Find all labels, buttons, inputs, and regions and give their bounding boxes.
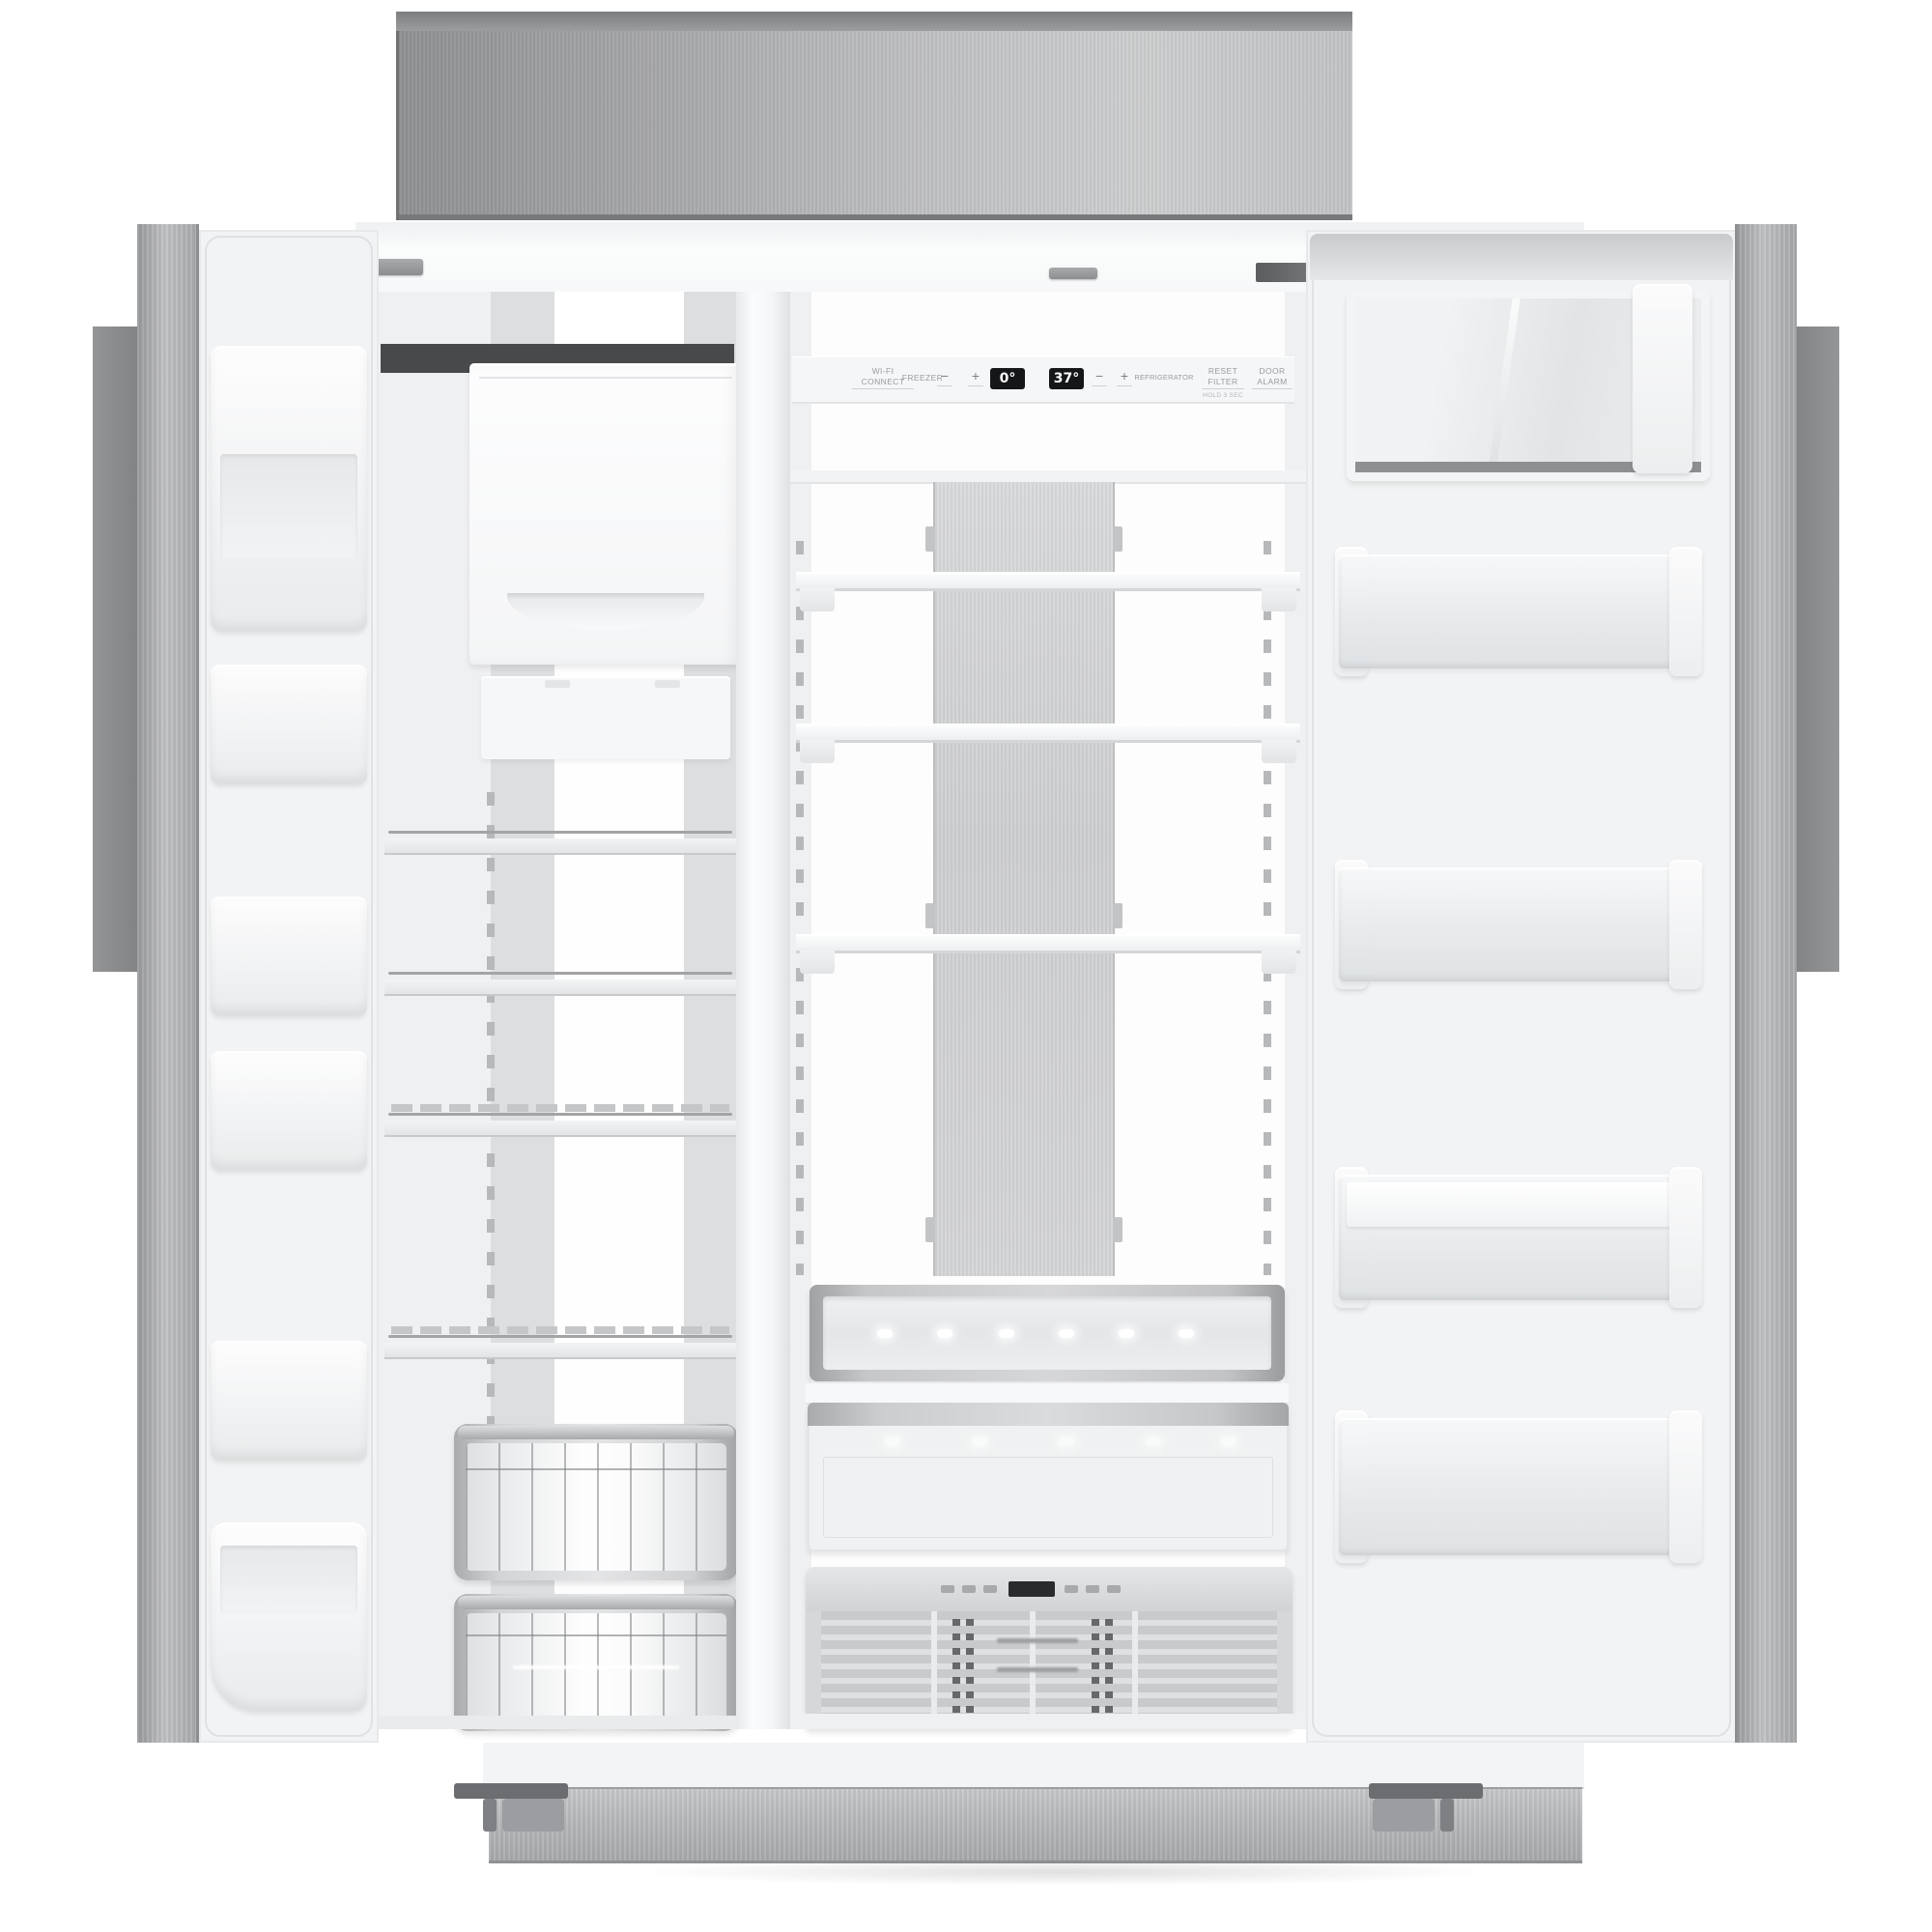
basket-light-reflection xyxy=(513,1665,680,1669)
lower-panel-tab-right xyxy=(655,680,680,688)
left-door-bin xyxy=(211,665,367,784)
hinge-pin xyxy=(1440,1799,1454,1832)
convertible-drawer-top-band xyxy=(806,1567,1293,1611)
glass-shelf-1 xyxy=(796,572,1300,591)
shelf-bracket-right xyxy=(1262,588,1296,611)
freezer-wire-shelf-3 xyxy=(384,1121,736,1137)
freezer-wire-shelf-2 xyxy=(384,980,736,996)
reset-filter-button[interactable]: RESET FILTER xyxy=(1202,366,1244,389)
shelf-wire xyxy=(388,831,733,834)
shelf-bracket-left xyxy=(800,951,835,974)
back-panel-tab xyxy=(1113,1217,1122,1242)
left-door-bin xyxy=(211,1051,367,1171)
drawer-led xyxy=(1059,1329,1074,1338)
glass-shelf-2 xyxy=(796,724,1300,743)
freezer-section xyxy=(379,292,736,1729)
left-door-liner xyxy=(199,230,379,1743)
lower-panel-tab-left xyxy=(545,680,570,688)
freezer-plus-button[interactable]: + xyxy=(968,369,983,386)
left-door-bin-top xyxy=(211,346,367,632)
ice-bin-handle xyxy=(507,593,703,630)
fridge-floor xyxy=(790,1714,1306,1729)
top-hood-cap xyxy=(396,12,1352,31)
shelf-bracket-right xyxy=(1262,951,1296,974)
drawer-led xyxy=(999,1329,1014,1338)
freezer-wire-shelf-4 xyxy=(384,1343,736,1359)
freezer-floor xyxy=(379,1716,736,1729)
top-hood-panel xyxy=(396,12,1352,220)
reset-line1: RESET xyxy=(1208,366,1237,376)
drawer-led xyxy=(972,1437,987,1446)
ice-bin-top-seam xyxy=(479,377,732,379)
alarm-line2: ALARM xyxy=(1257,377,1287,386)
freezer-temp-display: 0° xyxy=(990,368,1025,389)
deli-drawer-rail xyxy=(808,1403,1289,1426)
basket-rim xyxy=(458,1596,734,1609)
drawer-led xyxy=(1221,1437,1236,1446)
shelf-wire xyxy=(388,1113,733,1116)
ice-maker-bin xyxy=(469,363,742,665)
convertible-drawer-vent-grille xyxy=(821,1611,1277,1721)
shelf-wire xyxy=(388,972,733,975)
deli-drawer-inner-line xyxy=(823,1457,1273,1538)
shelf-bracket-left xyxy=(800,740,835,763)
ice-bin-lower-panel xyxy=(481,676,730,759)
convertible-drawer xyxy=(806,1567,1293,1729)
fridge-plus-button[interactable]: + xyxy=(1117,369,1132,386)
back-panel-tab xyxy=(925,903,935,928)
fridge-shelf-track-right xyxy=(1264,541,1271,1275)
vent-separator xyxy=(1132,1611,1138,1721)
back-panel-tab xyxy=(925,526,935,552)
wifi-line2: CONNECT xyxy=(862,377,905,386)
hinge-block xyxy=(1373,1799,1435,1832)
bin-end-cap xyxy=(1669,860,1702,989)
drawer-led xyxy=(1179,1329,1194,1338)
drawer-control-button[interactable] xyxy=(941,1585,954,1593)
back-panel-tab xyxy=(1113,903,1122,928)
vent-icon-column xyxy=(1105,1619,1113,1716)
vent-separator xyxy=(1030,1611,1036,1721)
left-door-bin xyxy=(211,1341,367,1461)
bin-window xyxy=(220,1546,357,1613)
bin-end-cap xyxy=(1669,1410,1702,1563)
temperature-control-panel: WI-FI CONNECT FREEZER − + 0° 37° − + xyxy=(792,356,1294,404)
dairy-divider xyxy=(1488,298,1520,472)
right-door-bottom-hinge xyxy=(1352,1777,1497,1837)
drawer-control-button[interactable] xyxy=(1086,1585,1099,1593)
vent-separator xyxy=(931,1611,937,1721)
produce-drawer-window xyxy=(823,1296,1271,1370)
drawer-led xyxy=(1059,1437,1074,1446)
bin-handle-bar xyxy=(1347,1182,1690,1227)
freezer-minus-button[interactable]: − xyxy=(937,369,952,386)
drawer-control-button[interactable] xyxy=(1107,1585,1121,1593)
vent-icon-column xyxy=(966,1619,974,1716)
left-door-bottom-hinge xyxy=(440,1777,584,1837)
drawer-led xyxy=(937,1329,952,1338)
fridge-temp-display: 37° xyxy=(1049,368,1084,389)
produce-drawer xyxy=(810,1285,1285,1381)
basket-horizontal-wire xyxy=(466,1468,726,1470)
left-door-bin xyxy=(211,896,367,1016)
deli-drawer xyxy=(808,1403,1289,1551)
drawer-control-button[interactable] xyxy=(1065,1585,1078,1593)
stainless-back-panel xyxy=(933,482,1115,1276)
drawer-led xyxy=(1146,1437,1161,1446)
bin-end-cap xyxy=(1669,1167,1702,1308)
right-door-bin xyxy=(1339,867,1698,981)
right-door-steel-edge xyxy=(1735,224,1797,1743)
drawer-led xyxy=(1119,1329,1134,1338)
reset-line2: FILTER xyxy=(1207,377,1237,386)
floor-shadow xyxy=(454,1853,1671,1891)
back-panel-tab xyxy=(925,1217,935,1242)
shelf-bracket-right xyxy=(1262,740,1296,763)
drawer-led xyxy=(885,1437,900,1446)
basket-rim xyxy=(458,1426,734,1439)
reset-filter-sub-label: HOLD 3 SEC xyxy=(1202,392,1244,399)
right-door-bin xyxy=(1339,1418,1698,1555)
basket-interior xyxy=(466,1613,726,1721)
left-door-bin-bottom xyxy=(211,1522,367,1712)
refrigerator-section: WI-FI CONNECT FREEZER − + 0° 37° − + xyxy=(790,292,1306,1729)
shelf-wire-grid xyxy=(391,1326,728,1334)
refrigerator-label: REFRIGERATOR xyxy=(1134,373,1194,384)
bin-end-cap xyxy=(1669,547,1702,676)
dairy-end-cap xyxy=(1633,284,1692,473)
back-panel-tab xyxy=(1113,526,1122,552)
hinge-block xyxy=(502,1799,564,1832)
hinge-arm xyxy=(454,1783,568,1799)
right-door-top-edge xyxy=(1310,234,1733,280)
freezer-basket-lower xyxy=(454,1594,738,1731)
drawer-control-button[interactable] xyxy=(983,1585,997,1593)
right-door-bin-with-handle xyxy=(1339,1175,1698,1300)
basket-interior xyxy=(466,1443,726,1571)
drawer-gap-shelf xyxy=(806,1383,1289,1405)
vent-setting-text xyxy=(997,1667,1078,1672)
hinge-arm xyxy=(1369,1783,1483,1799)
fridge-minus-button[interactable]: − xyxy=(1092,369,1107,386)
vent-icon-column xyxy=(952,1619,960,1716)
center-mullion xyxy=(736,292,790,1729)
vent-setting-text xyxy=(997,1638,1078,1643)
left-door-steel-edge xyxy=(137,224,199,1743)
right-door-bin xyxy=(1339,554,1698,668)
fridge-shelf-track-left xyxy=(796,541,804,1275)
basket-wires xyxy=(466,1443,726,1571)
drawer-led xyxy=(877,1329,893,1338)
refrigerator-product-photo: WI-FI CONNECT FREEZER − + 0° 37° − + xyxy=(0,0,1932,1932)
freezer-wire-shelf-1 xyxy=(384,838,736,855)
shelf-wire xyxy=(388,1335,733,1338)
shelf-bracket-left xyxy=(800,588,835,611)
alarm-line1: DOOR xyxy=(1259,366,1285,376)
drawer-control-button[interactable] xyxy=(962,1585,976,1593)
glass-shelf-3 xyxy=(796,934,1300,953)
right-door-liner xyxy=(1306,230,1737,1743)
freezer-basket-upper xyxy=(454,1424,738,1580)
vent-icon-column xyxy=(1092,1619,1099,1716)
bin-window xyxy=(220,454,357,558)
right-door-top-hinge xyxy=(1049,268,1097,279)
convertible-drawer-display xyxy=(1009,1581,1055,1597)
wifi-line1: WI-FI xyxy=(872,366,895,376)
hinge-pin xyxy=(483,1799,497,1832)
shelf-wire-grid xyxy=(391,1104,728,1112)
basket-horizontal-wire xyxy=(466,1634,726,1636)
door-alarm-button[interactable]: DOOR ALARM xyxy=(1252,366,1293,389)
